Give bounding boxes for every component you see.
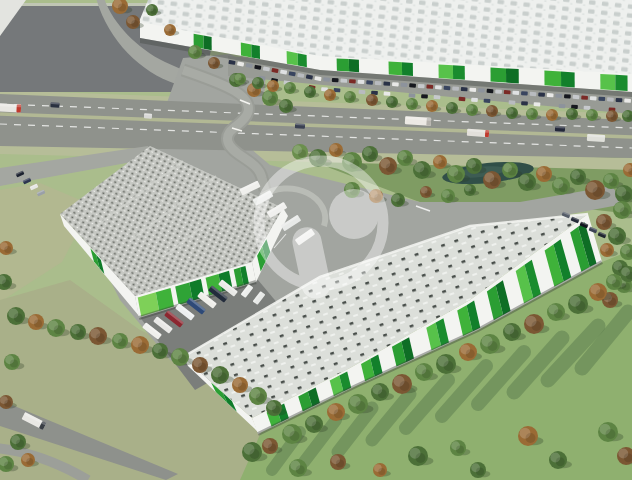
facade-panel <box>439 64 454 79</box>
facade-panel <box>561 72 575 88</box>
parked-car <box>332 78 339 82</box>
parked-car <box>512 91 519 95</box>
truck <box>0 103 21 112</box>
parked-car <box>504 90 511 94</box>
facade-panel <box>298 53 307 67</box>
parked-car <box>421 94 428 98</box>
facade-panel <box>600 74 615 90</box>
parked-car <box>581 95 588 99</box>
facade-panel <box>251 45 260 59</box>
parked-car <box>461 87 468 91</box>
facade-panel <box>204 36 212 51</box>
parked-car <box>487 89 494 93</box>
facade-panel <box>287 51 298 66</box>
parked-car <box>547 93 554 97</box>
car <box>50 102 59 107</box>
parked-car <box>323 77 330 81</box>
parked-car <box>409 93 416 97</box>
parked-car <box>375 81 382 85</box>
parked-car <box>349 79 356 83</box>
parked-car <box>452 86 459 90</box>
parked-car <box>584 106 591 110</box>
parked-car <box>392 82 399 86</box>
parked-car <box>559 104 566 108</box>
parked-car <box>435 85 442 89</box>
facade-panel <box>453 65 465 80</box>
parked-car <box>495 89 502 93</box>
parked-car <box>534 102 541 106</box>
parked-car <box>401 83 408 87</box>
watermark-dot <box>329 189 379 239</box>
parked-car <box>521 91 528 95</box>
parked-car <box>521 101 528 105</box>
parked-car <box>573 95 580 99</box>
parked-car <box>478 88 485 92</box>
logistics-park-scene <box>0 0 632 480</box>
facade-panel <box>337 58 350 71</box>
parked-car <box>444 86 451 90</box>
parked-car <box>624 98 631 102</box>
facade-panel <box>544 71 561 87</box>
parked-car <box>459 97 466 101</box>
parked-car <box>555 94 562 98</box>
facade-panel <box>389 61 403 75</box>
parked-car <box>616 98 623 102</box>
parked-car <box>409 83 416 87</box>
parked-car <box>366 80 373 84</box>
parked-car <box>340 78 347 82</box>
car <box>295 123 305 129</box>
facade-panel <box>349 59 359 72</box>
parked-car <box>418 84 425 88</box>
facade-panel <box>491 68 507 83</box>
parked-car <box>426 84 433 88</box>
parked-car <box>358 80 365 84</box>
car <box>144 113 152 118</box>
parked-car <box>484 99 491 103</box>
car <box>555 126 565 132</box>
parked-car <box>434 95 441 99</box>
parked-car <box>530 92 537 96</box>
facade-panel <box>241 43 252 58</box>
parked-car <box>607 97 614 101</box>
parked-car <box>469 88 476 92</box>
parked-car <box>383 81 390 85</box>
parked-car <box>471 98 478 102</box>
parked-car <box>384 91 391 95</box>
facade-panel <box>615 75 627 91</box>
facade-panel <box>402 62 413 76</box>
truck <box>587 134 605 142</box>
parked-car <box>598 97 605 101</box>
parked-car <box>359 90 366 94</box>
facade-panel <box>506 68 519 83</box>
parked-car <box>538 92 545 96</box>
parked-car <box>509 100 516 104</box>
aerial-render <box>0 0 632 480</box>
parked-car <box>590 96 597 100</box>
parked-car <box>564 94 571 98</box>
